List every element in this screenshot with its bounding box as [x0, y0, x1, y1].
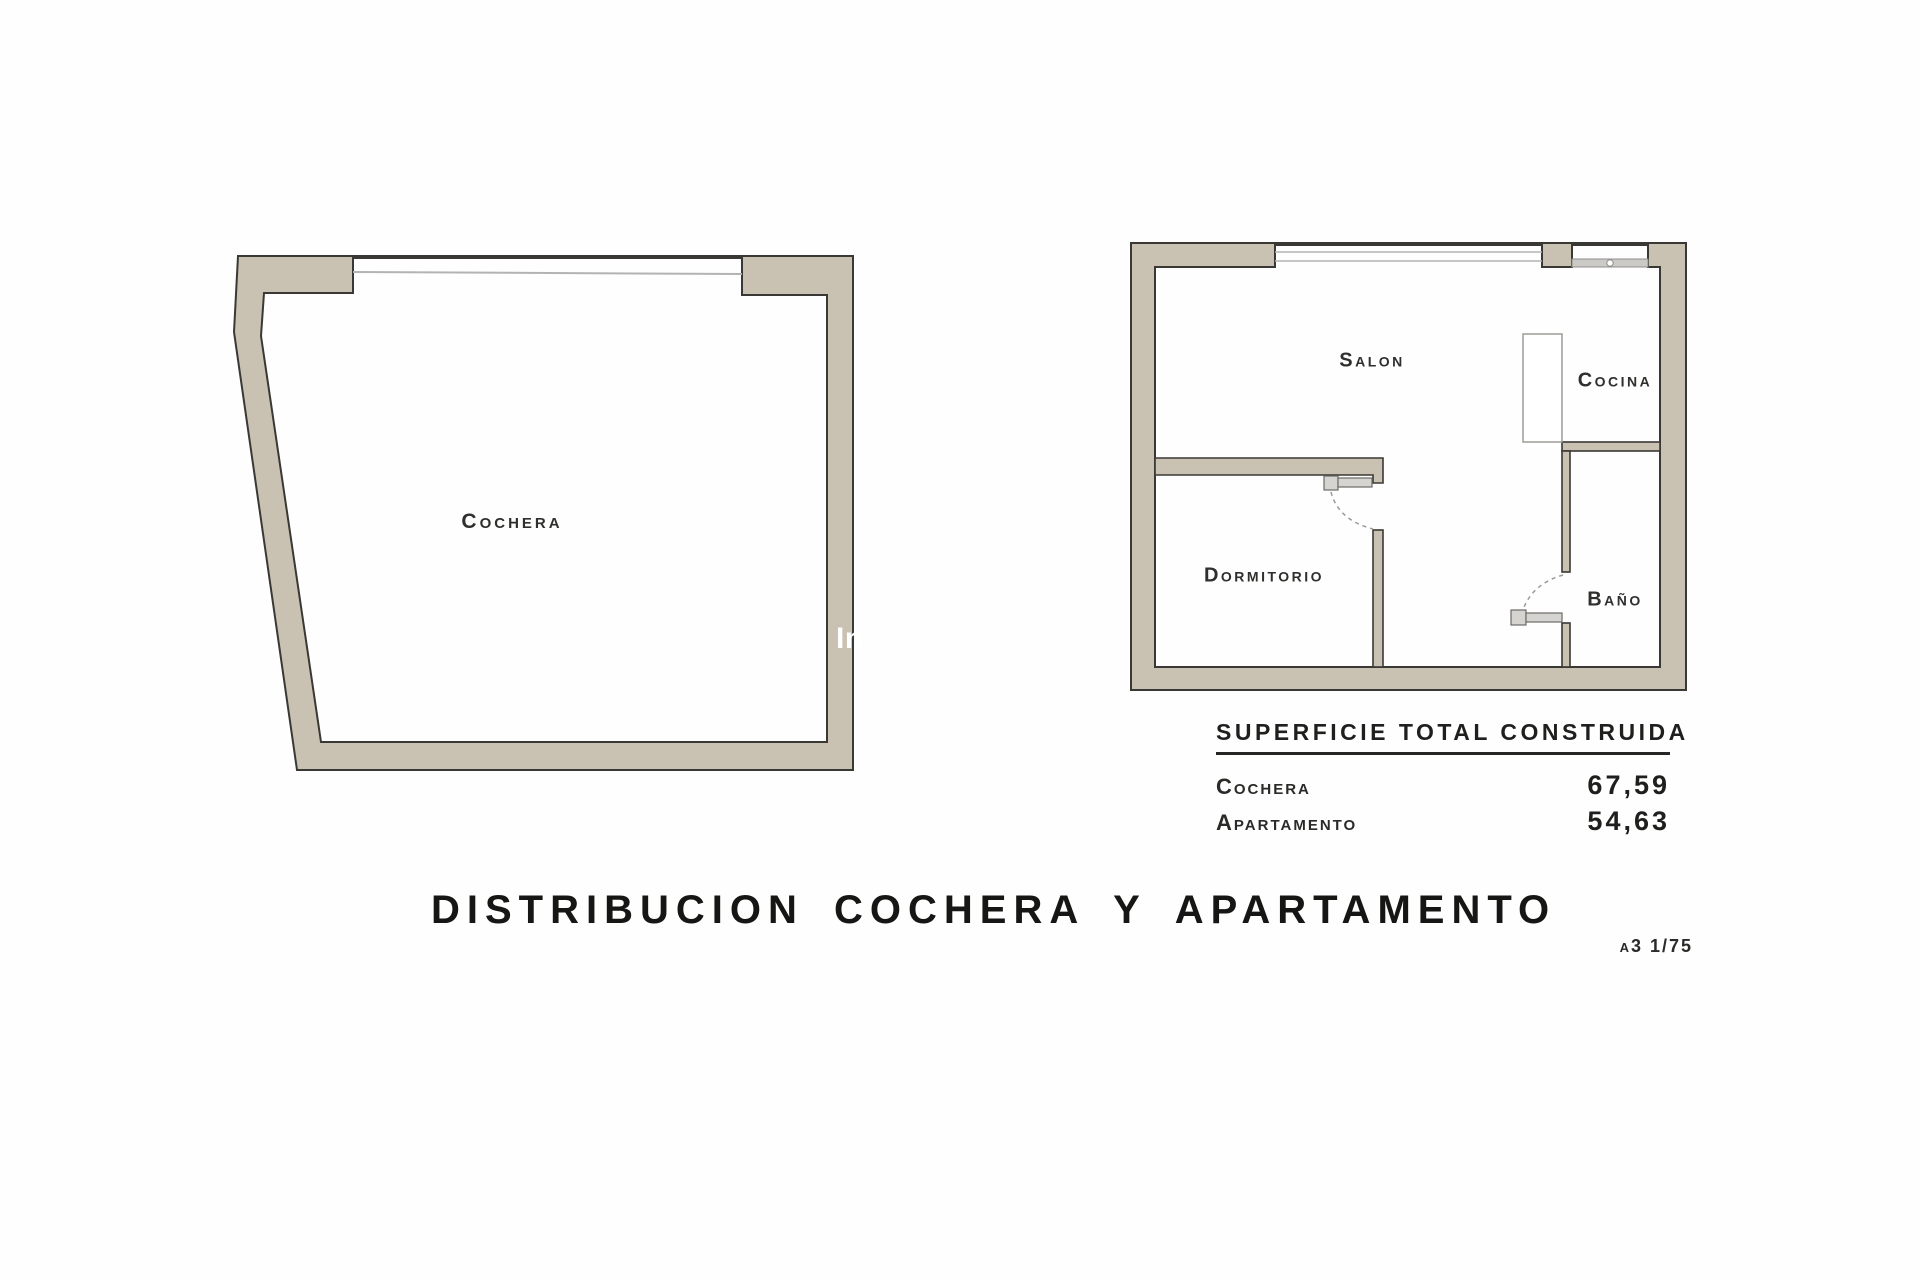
bano-wall-upper — [1562, 451, 1570, 572]
sheet-title: DISTRIBUCION COCHERA Y APARTAMENTO — [431, 888, 1693, 933]
floor-plan-sheet: Cochera Salon Cocina Dormitorio Baño In … — [0, 0, 1920, 1280]
surface-summary-table: SUPERFICIE TOTAL CONSTRUIDA Cochera 67,5… — [1216, 719, 1670, 837]
cocina-window-handle — [1607, 260, 1613, 266]
dormitorio-room-label: Dormitorio — [1204, 565, 1324, 588]
dormitorio-door-leaf — [1338, 478, 1372, 487]
floor-plan-drawing — [0, 0, 1920, 1280]
salon-room-label: Salon — [1339, 350, 1405, 373]
sheet-scale-note: a3 1/75 — [431, 936, 1693, 957]
bano-door-leaf — [1526, 613, 1562, 622]
row-value-apartamento: 54,63 — [1587, 806, 1670, 837]
table-row: Cochera 67,59 — [1216, 770, 1670, 801]
kitchen-counter — [1523, 334, 1562, 442]
dormitorio-door-hinge — [1324, 476, 1338, 490]
cochera-garage-door-line — [353, 272, 742, 274]
table-row: Apartamento 54,63 — [1216, 806, 1670, 837]
bano-door-arc — [1523, 575, 1563, 610]
surface-summary-heading: SUPERFICIE TOTAL CONSTRUIDA — [1216, 719, 1670, 755]
cocina-bano-wall — [1562, 442, 1660, 451]
bano-door-hinge — [1511, 610, 1526, 625]
row-label-apartamento: Apartamento — [1216, 810, 1357, 836]
cocina-room-label: Cocina — [1578, 370, 1653, 393]
bano-room-label: Baño — [1587, 589, 1643, 612]
bano-wall-lower — [1562, 623, 1570, 667]
dormitorio-door-arc — [1331, 492, 1373, 529]
dormitorio-wall-lower — [1373, 530, 1383, 667]
row-value-cochera: 67,59 — [1587, 770, 1670, 801]
row-label-cochera: Cochera — [1216, 774, 1311, 800]
cochera-room-label: Cochera — [461, 510, 562, 534]
watermark-text: In — [836, 622, 864, 656]
